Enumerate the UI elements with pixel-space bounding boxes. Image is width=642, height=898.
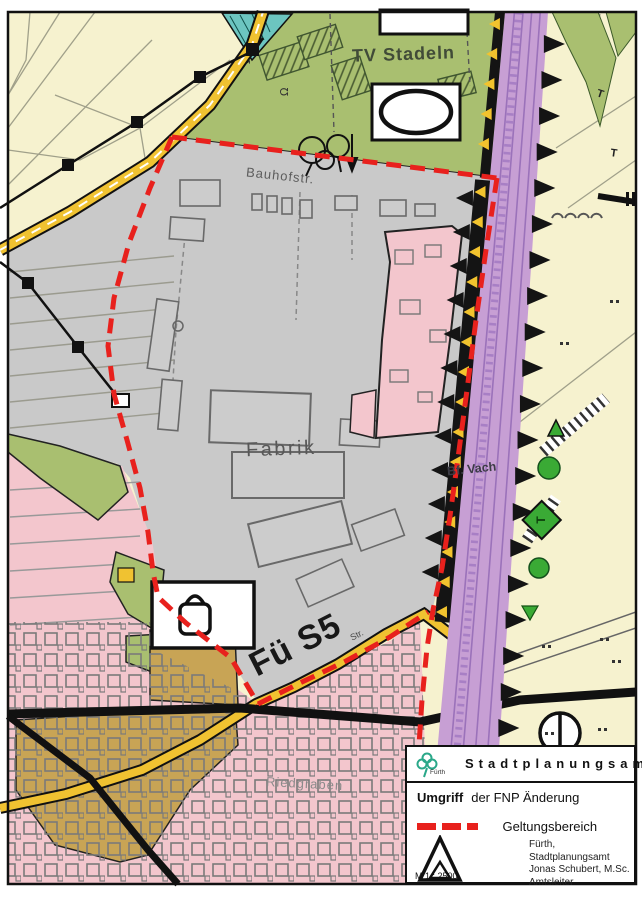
logo-city-label: Fürth: [430, 769, 445, 776]
legend-title-bold: Umgriff: [417, 790, 463, 805]
stadium-symbol: [372, 84, 460, 140]
svg-text:Ω: Ω: [278, 88, 291, 96]
tree-symbol: [538, 457, 560, 479]
legend-header: Fürth Stadtplanungsamt: [407, 747, 634, 783]
legend-signatory: Jonas Schubert, M.Sc. Amtsleiter: [529, 864, 630, 889]
plan-map-sheet: Ω Ω: [0, 0, 642, 898]
fuerth-logo: Fürth: [415, 750, 449, 780]
legend-issuer: Fürth, Stadtplanungsamt: [529, 839, 610, 864]
yellow-parcel: [118, 568, 134, 582]
hall-building: [380, 10, 468, 34]
tree-symbol: [529, 558, 549, 578]
legend-title-rest: der FNP Änderung: [471, 790, 579, 805]
legend-box: Fürth Stadtplanungsamt Umgriffder FNP Än…: [405, 745, 636, 884]
boundary-sample: [417, 817, 484, 835]
legend-boundary-label: Geltungsbereich: [502, 819, 597, 834]
legend-title: Umgriffder FNP Änderung: [417, 790, 579, 805]
legend-boundary-row: Geltungsbereich: [417, 817, 597, 833]
legend-scale: M 1 : 2500: [415, 871, 458, 881]
legend-agency: Stadtplanungsamt: [465, 756, 642, 771]
svg-text:T: T: [534, 516, 548, 524]
